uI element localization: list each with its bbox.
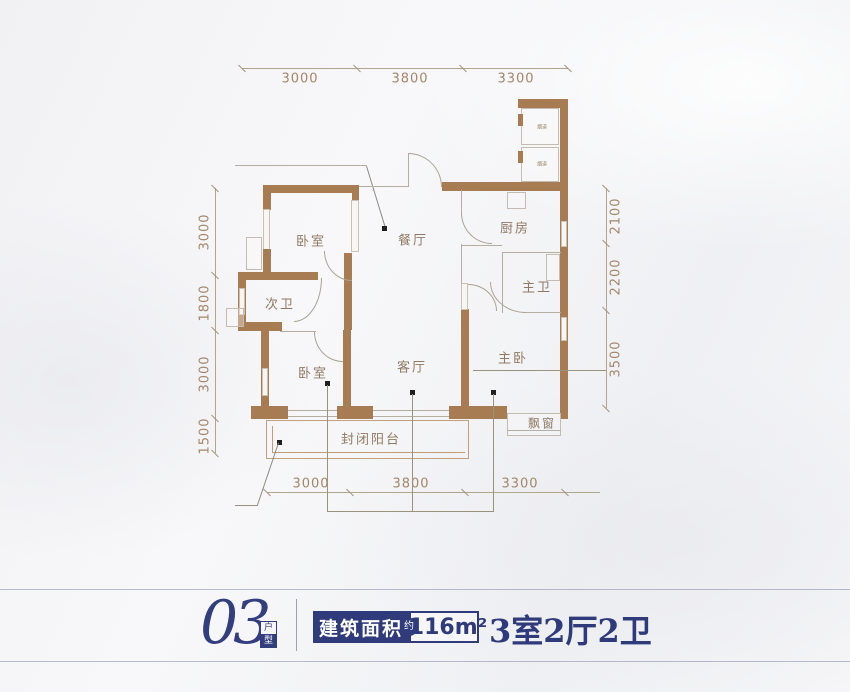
dim-label: 3000 xyxy=(292,477,329,492)
wall xyxy=(461,309,469,412)
room-label-bathroom-second: 次卫 xyxy=(265,294,295,313)
window-slot xyxy=(263,209,270,250)
door-arc xyxy=(294,278,322,322)
window-line xyxy=(373,410,449,411)
wall xyxy=(263,185,359,193)
callout-dot xyxy=(382,226,387,231)
dim-label: 2100 xyxy=(609,197,624,234)
leader-line xyxy=(235,505,258,506)
leader-line xyxy=(493,394,494,511)
door-arc xyxy=(408,153,442,187)
ac-platform xyxy=(246,237,262,270)
wall xyxy=(238,322,282,331)
partition-line xyxy=(461,245,502,246)
window-line xyxy=(373,416,449,417)
room-label-bedroom-master: 主卧 xyxy=(498,348,528,367)
door-arc xyxy=(324,251,352,281)
area-label: 建筑面积 xyxy=(313,611,409,643)
wall xyxy=(518,114,523,126)
room-label-living: 客厅 xyxy=(397,357,427,376)
door-arc xyxy=(461,213,492,244)
balcony-inner-line xyxy=(272,426,273,453)
dim-label: 1800 xyxy=(198,284,213,321)
floorplan-page: 烟道 烟道 卧室 餐厅 厨房 次卫 主卫 客厅 主卧 卧室 封闭阳台 飘窗 30… xyxy=(0,0,850,692)
dimension-line-left xyxy=(215,188,216,453)
rooms-summary: 3室2厅2卫 xyxy=(489,606,652,652)
room-label-bathroom-master: 主卫 xyxy=(522,277,552,296)
balcony-inner-line xyxy=(272,452,465,453)
dimension-line-right xyxy=(606,188,607,408)
wall xyxy=(352,185,359,201)
room-label-bedroom-bottom: 卧室 xyxy=(298,363,328,382)
leader-line xyxy=(327,511,494,512)
wall xyxy=(263,185,271,210)
wall xyxy=(518,151,523,163)
window-line xyxy=(288,416,337,417)
dim-label: 3000 xyxy=(198,355,213,392)
ac-platform xyxy=(226,308,244,327)
kitchen-fixture xyxy=(507,192,526,209)
dim-label: 3000 xyxy=(198,213,213,250)
window-slot xyxy=(561,221,567,247)
area-approx-badge: 约 xyxy=(400,618,418,636)
dim-label: 3500 xyxy=(609,340,624,377)
leader-line xyxy=(473,370,606,371)
window-line xyxy=(288,410,337,411)
leader-line xyxy=(366,166,386,228)
unit-badge-bottom: 型 xyxy=(260,635,277,648)
partition-line xyxy=(461,244,462,284)
wall xyxy=(251,406,288,419)
platform-line xyxy=(235,165,367,166)
door-arc xyxy=(314,332,343,362)
unit-number: 03 xyxy=(200,588,266,658)
dimension-line-bottom xyxy=(267,492,600,493)
area-value: 116m² xyxy=(409,611,479,643)
dim-label: 1500 xyxy=(198,417,213,454)
wall xyxy=(560,99,568,419)
window-slot xyxy=(561,317,567,341)
room-label-balcony: 封闭阳台 xyxy=(341,429,401,448)
unit-badge-top: 户 xyxy=(260,621,277,635)
dim-label: 3000 xyxy=(281,72,318,87)
room-label-kitchen: 厨房 xyxy=(500,218,530,237)
partition-line xyxy=(461,190,462,214)
wall xyxy=(343,330,351,407)
door-leaf xyxy=(461,283,468,310)
shaft-label: 烟道 xyxy=(537,161,547,168)
footer-bottom-rule xyxy=(0,661,850,662)
partition-line xyxy=(524,312,561,313)
unit-type-badge: 户 型 xyxy=(260,621,277,649)
room-label-bay-window: 飘窗 xyxy=(528,415,556,432)
leader-line xyxy=(412,394,413,511)
footer-divider xyxy=(296,599,297,651)
dim-label: 3800 xyxy=(392,477,429,492)
partition-line xyxy=(280,331,316,332)
dimension-line-top xyxy=(242,68,568,69)
dim-label: 3300 xyxy=(497,72,534,87)
dim-label: 3800 xyxy=(391,72,428,87)
partition-line xyxy=(502,252,561,253)
entry-wall-line xyxy=(359,186,408,187)
wall xyxy=(449,406,507,419)
room-label-bedroom-top: 卧室 xyxy=(296,231,326,250)
wall xyxy=(337,406,373,419)
dim-label: 3300 xyxy=(501,477,538,492)
footer-top-rule xyxy=(0,589,850,590)
leader-line xyxy=(327,385,328,511)
wall xyxy=(263,249,271,274)
shaft-label: 烟道 xyxy=(537,124,547,131)
window-slot xyxy=(262,368,268,396)
room-label-dining: 餐厅 xyxy=(398,230,428,249)
dim-label: 2200 xyxy=(609,258,624,295)
window-slot xyxy=(351,200,359,252)
